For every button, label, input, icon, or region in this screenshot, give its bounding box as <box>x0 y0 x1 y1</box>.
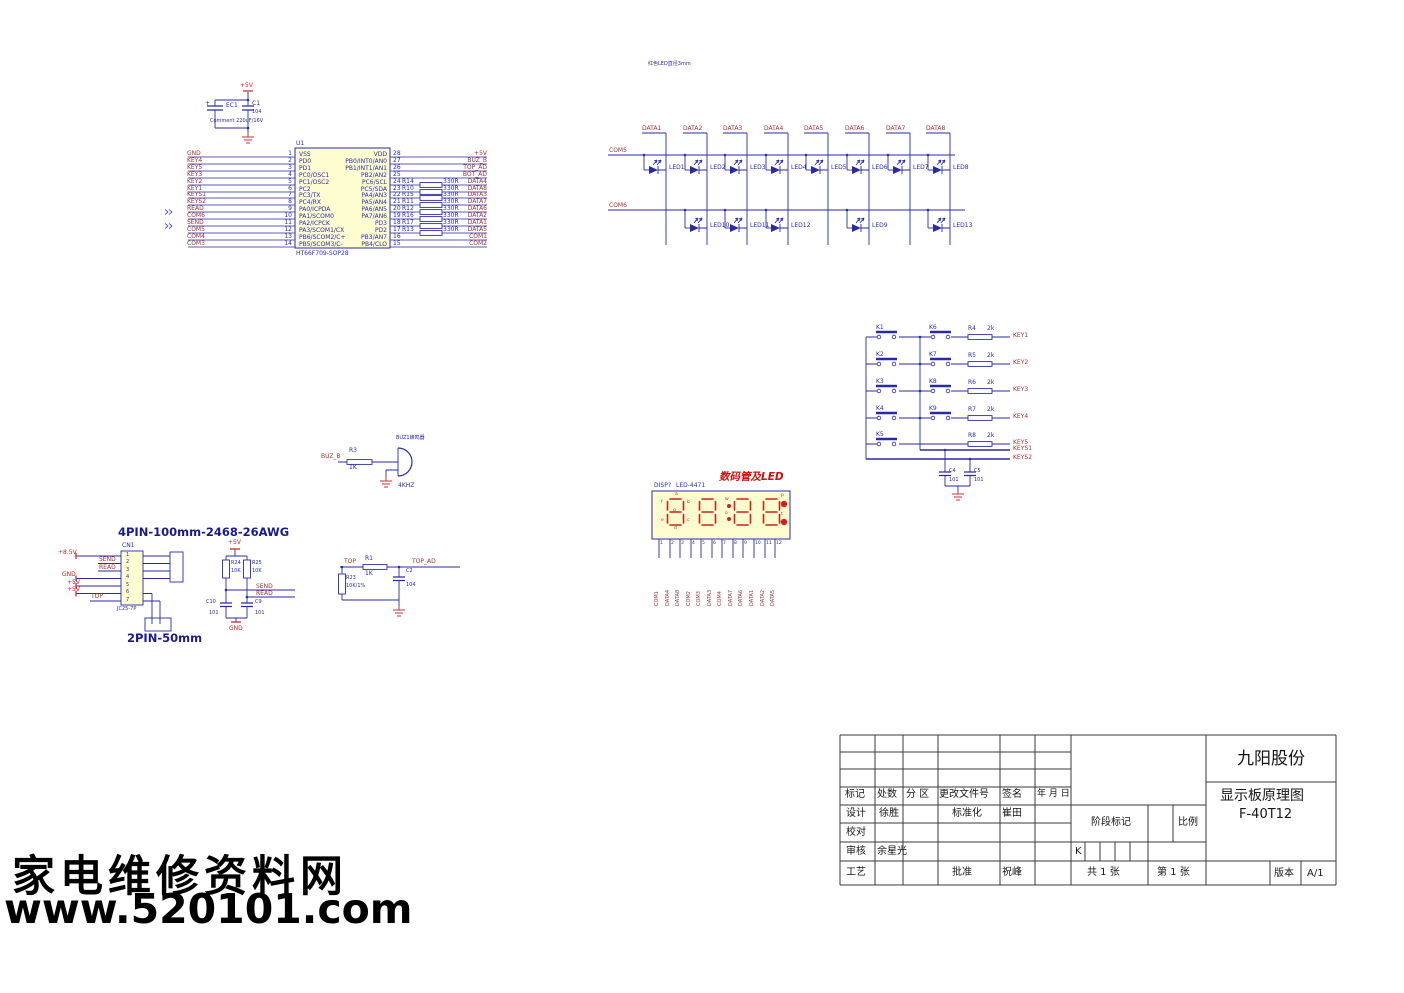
net-label: DATA8 <box>926 126 945 132</box>
titleblock-cell: 标准化 <box>952 809 982 819</box>
net-label: COM1 <box>655 560 663 606</box>
segment-label: f <box>661 501 663 506</box>
mcu-power-graphics <box>207 91 254 143</box>
resistor-ref: R24 <box>231 561 241 566</box>
led-ref: LED12 <box>791 223 810 229</box>
net-label: DATA6 <box>739 560 747 606</box>
segment-label: a <box>675 493 678 498</box>
net-label: TOP_AD <box>412 559 436 565</box>
switch-ref: K1 <box>876 325 884 331</box>
pin-number: 4 <box>126 575 129 580</box>
resistor-ref: R25 <box>252 561 262 566</box>
component-ref: DISP? <box>654 483 671 489</box>
titleblock-header: 标记 <box>845 790 865 800</box>
switch-ref: K3 <box>876 379 884 385</box>
titleblock-cell: 工艺 <box>846 868 866 878</box>
led-ref: LED3 <box>750 165 766 171</box>
switch-ref: K9 <box>929 406 937 412</box>
component-value: 104 <box>252 110 262 115</box>
resistor-value: 2k <box>987 353 994 359</box>
cap-ref: C2 <box>406 569 413 574</box>
pin-number: 5 <box>126 583 129 588</box>
titleblock-header: 分 区 <box>906 790 929 800</box>
net-label: COM5 <box>609 148 627 154</box>
net-label: KEYS1 <box>1013 446 1032 452</box>
version-label: 版本 <box>1274 869 1294 879</box>
segment-label: g <box>673 509 676 514</box>
display-graphics <box>652 491 790 558</box>
component-ref: C1 <box>252 101 260 107</box>
net-label: TOP <box>91 594 103 600</box>
led-ref: LED7 <box>913 165 929 171</box>
segment-label: d <box>674 527 677 532</box>
titleblock-cell: 校对 <box>846 828 866 838</box>
pin-number: 4 <box>692 542 695 547</box>
component-part: HT66F709-SOP28 <box>296 251 349 257</box>
power-rail-label: +5V <box>228 540 241 546</box>
dot-label: o <box>725 512 728 517</box>
company-name: 九阳股份 <box>1237 751 1305 768</box>
net-label: DATA7 <box>886 126 905 132</box>
titleblock-cell: 设计 <box>846 809 866 819</box>
led-ref: LED2 <box>710 165 726 171</box>
net-label: SEND <box>99 557 116 563</box>
pin-number: 11 <box>766 542 772 547</box>
net-label: DATA2 <box>683 126 702 132</box>
cap-ref: C5 <box>974 469 981 474</box>
led-array-graphics <box>608 133 965 245</box>
pin-number: 1 <box>126 553 129 558</box>
resistor-ref: R1 <box>365 556 373 562</box>
net-label: KEY3 <box>1013 387 1028 393</box>
cap-ref: C10 <box>206 600 216 605</box>
net-label: BUZ_B <box>321 454 341 460</box>
sheet-number: 第 1 张 <box>1157 868 1190 878</box>
net-label: READ <box>256 591 273 597</box>
led-ref: LED4 <box>791 165 807 171</box>
net-label: DATA5 <box>804 126 823 132</box>
resistor-value: 2k <box>987 326 994 332</box>
titleblock-cell: 徐胜 <box>879 809 899 819</box>
buzzer-ref: BUZ1蜂鸣器 <box>396 436 425 441</box>
net-label: COM6 <box>609 203 627 209</box>
net-label: +5V <box>67 587 80 593</box>
cap-value: 101 <box>255 611 265 616</box>
led-ref: LED11 <box>750 223 769 229</box>
polarity-plus: + <box>205 101 210 107</box>
component-note: Comment 220uF/16V <box>210 119 263 124</box>
cap-value: 101 <box>209 611 219 616</box>
resistor-value: 10K <box>231 569 241 574</box>
titleblock-cell: 余星光 <box>877 847 907 857</box>
cap-ref: C4 <box>949 469 956 474</box>
segment-label: b <box>687 501 690 506</box>
harness-graphics <box>76 551 183 631</box>
harness-tail-label: 2PIN-50mm <box>127 633 202 645</box>
schematic-page: +5V + EC1 Comment 220uF/16V C1 104 U1 HT… <box>0 0 1404 993</box>
titleblock-header: 更改文件号 <box>939 790 989 800</box>
net-label: TOP <box>344 559 356 565</box>
net-label: READ <box>99 565 116 571</box>
titleblock-cell: 祝峰 <box>1002 868 1022 878</box>
resistor-value: 2k <box>987 407 994 413</box>
sheet-count: 共 1 张 <box>1087 868 1120 878</box>
resistor-ref: R13 <box>402 227 414 233</box>
ground-label: GND <box>229 626 243 632</box>
net-label: KEY4 <box>1013 414 1028 420</box>
version-value: A/1 <box>1307 869 1324 879</box>
net-label: DATA2 <box>761 560 769 606</box>
net-label: COM3 <box>187 241 205 247</box>
net-label: KEY2 <box>1013 360 1028 366</box>
net-label: DATA6 <box>845 126 864 132</box>
net-label: DATA8 <box>676 560 684 606</box>
pin-number: 1 <box>660 542 663 547</box>
net-label: DATA4 <box>764 126 783 132</box>
switch-ref: K5 <box>876 432 884 438</box>
stage-mark-value: K <box>1075 847 1082 857</box>
pin-number: 3 <box>681 542 684 547</box>
titleblock-cell: 审核 <box>846 847 866 857</box>
titleblock-header: 处数 <box>877 790 897 800</box>
resistor-value: 2k <box>987 433 994 439</box>
harness-title: 4PIN-100mm-2468-26AWG <box>118 527 289 539</box>
net-label: COM4 <box>718 560 726 606</box>
resistor-ref: R7 <box>968 407 976 413</box>
led-ref: LED10 <box>710 223 729 229</box>
pin-number: 15 <box>393 241 401 247</box>
led-ref: LED9 <box>872 223 888 229</box>
net-label: DATA1 <box>642 126 661 132</box>
titleblock-header: 签名 <box>1002 790 1022 800</box>
led-note: 红色LED直径3mm <box>648 62 691 67</box>
net-label: DATA7 <box>729 560 737 606</box>
led-ref: LED13 <box>953 223 972 229</box>
titleblock-header: 年 月 日 <box>1037 790 1070 799</box>
switch-ref: K7 <box>929 352 937 358</box>
pin-number: 8 <box>734 542 737 547</box>
component-ref: U1 <box>296 141 304 147</box>
led-ref: LED1 <box>669 165 685 171</box>
component-ref: EC1 <box>226 103 238 109</box>
pin-name: PB4/CLO <box>301 242 387 248</box>
cap-value: 101 <box>949 478 959 483</box>
buzzer-frequency: 4KHZ <box>398 483 414 489</box>
net-label: DATA3 <box>723 126 742 132</box>
pin-number: 2 <box>126 560 129 565</box>
pin-number: 7 <box>723 542 726 547</box>
section-title: 数码管及LED <box>719 472 784 483</box>
led-ref: LED8 <box>953 165 969 171</box>
resistor-value: 10K/1% <box>346 584 365 589</box>
segment-label: e <box>661 519 664 524</box>
resistor-ref: R8 <box>968 433 976 439</box>
stage-mark-label: 阶段标记 <box>1091 818 1131 828</box>
cap-value: 101 <box>974 478 984 483</box>
dot-label: t <box>781 513 783 518</box>
pin-number: 14 <box>272 241 292 247</box>
model-number: F-40T12 <box>1239 808 1292 821</box>
top-filter-graphics <box>339 565 461 616</box>
resistor-value: 10K <box>252 569 262 574</box>
titleblock-cell: 批准 <box>952 868 972 878</box>
net-label: DATA4 <box>666 560 674 606</box>
led-ref: LED6 <box>872 165 888 171</box>
switch-ref: K8 <box>929 379 937 385</box>
pin-number: 5 <box>702 542 705 547</box>
component-part: JC25-7P <box>117 607 136 612</box>
switch-ref: K6 <box>929 325 937 331</box>
titleblock-cell: 崔田 <box>1002 809 1022 819</box>
cap-value: 104 <box>406 583 416 588</box>
pin-number: 7 <box>126 598 129 603</box>
net-label: DATA3 <box>708 560 716 606</box>
resistor-ref: R23 <box>346 576 356 581</box>
pin-number: 2 <box>671 542 674 547</box>
component-ref: CN1 <box>122 543 135 549</box>
net-label: COM2 <box>415 241 487 247</box>
net-label: COM2 <box>687 560 695 606</box>
pin-number: 9 <box>744 542 747 547</box>
dot-label: P <box>781 495 784 500</box>
net-label: GND <box>62 572 76 578</box>
document-title: 显示板原理图 <box>1220 789 1304 803</box>
resistor-value: 2k <box>987 380 994 386</box>
dot-label: w <box>725 498 729 503</box>
net-label: DATA1 <box>750 560 758 606</box>
cap-ref: C9 <box>255 600 262 605</box>
component-part: LED-4471 <box>676 483 705 489</box>
net-label: COM3 <box>697 560 705 606</box>
pin-number: 6 <box>126 590 129 595</box>
switch-ref: K4 <box>876 406 884 412</box>
led-ref: LED5 <box>831 165 847 171</box>
resistor-ref: R5 <box>968 353 976 359</box>
segment-label: c <box>687 519 689 524</box>
resistor-value: 1K <box>349 465 357 471</box>
scale-label: 比例 <box>1178 818 1198 828</box>
net-label: KEYS2 <box>1013 455 1032 461</box>
resistor-ref: R6 <box>968 380 976 386</box>
switch-ref: K2 <box>876 352 884 358</box>
net-label: +8.5V <box>58 550 77 556</box>
pin-number: 10 <box>755 542 761 547</box>
resistor-ref: R4 <box>968 326 976 332</box>
resistor-value: 1K <box>365 571 373 577</box>
pin-number: 3 <box>126 568 129 573</box>
pin-number: 6 <box>713 542 716 547</box>
power-rail-label: +5V <box>240 83 253 89</box>
net-label: KEY1 <box>1013 333 1028 339</box>
net-label: DATA5 <box>771 560 779 606</box>
watermark-url: www.520101.com <box>4 885 413 933</box>
resistor-ref: R3 <box>349 448 357 454</box>
pin-number: 12 <box>776 542 782 547</box>
